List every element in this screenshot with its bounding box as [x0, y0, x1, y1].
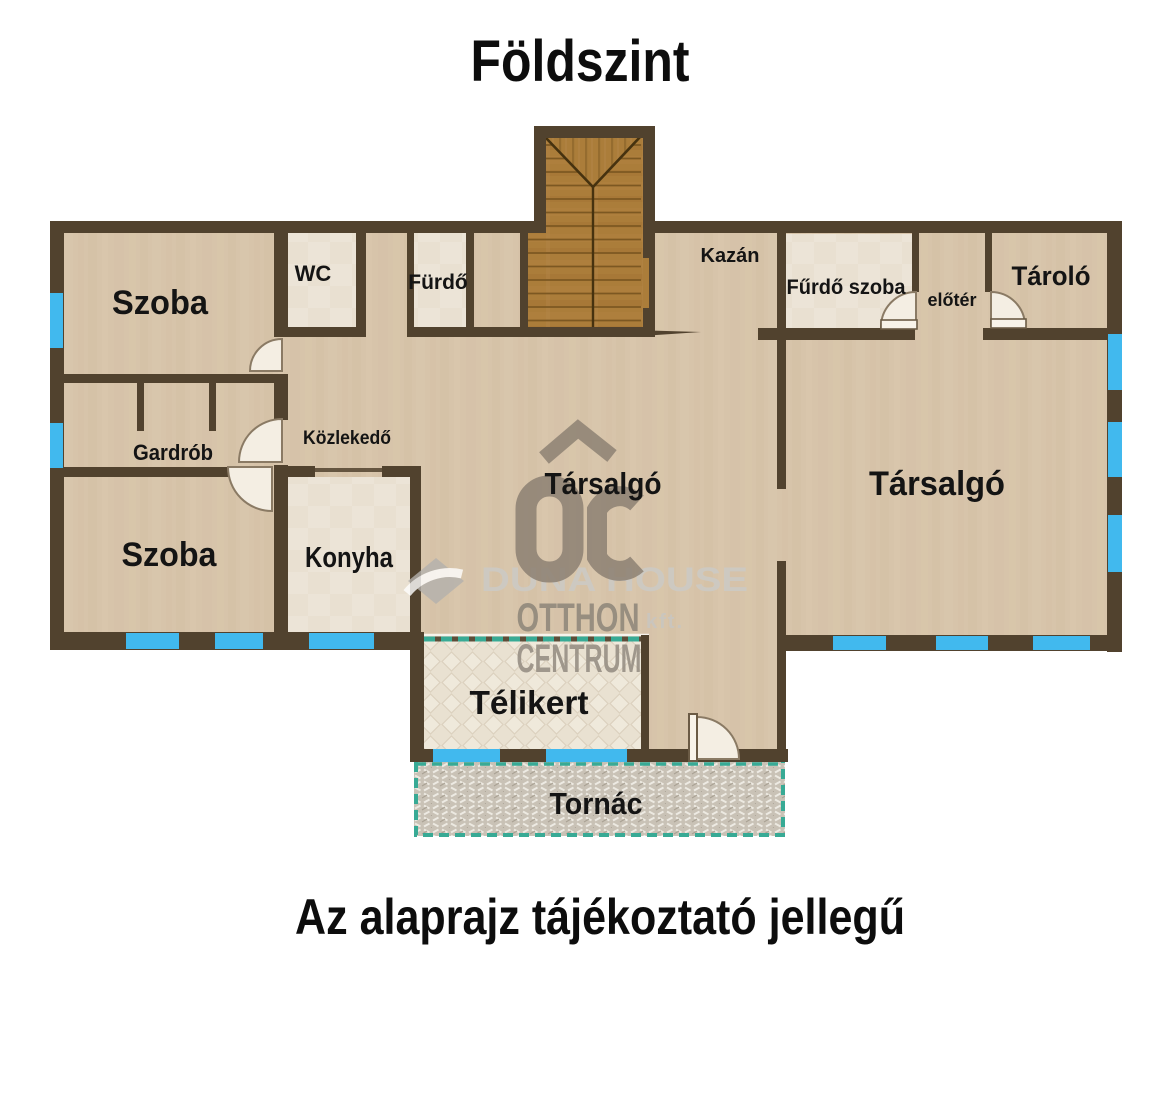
svg-text:WC: WC [295, 261, 332, 286]
svg-text:Közlekedő: Közlekedő [303, 428, 391, 449]
svg-text:CENTRUM: CENTRUM [517, 637, 642, 681]
svg-text:Kazán: Kazán [701, 245, 760, 267]
svg-text:Fürdő: Fürdő [408, 271, 467, 294]
svg-text:Földszint: Földszint [471, 29, 690, 94]
svg-text:Szoba: Szoba [122, 536, 218, 574]
svg-text:Tornác: Tornác [550, 786, 643, 821]
svg-text:Konyha: Konyha [305, 542, 394, 574]
svg-text:Télikert: Télikert [470, 684, 589, 721]
svg-text:Szoba: Szoba [112, 284, 209, 322]
svg-text:Tároló: Tároló [1012, 261, 1091, 291]
svg-text:Gardrób: Gardrób [133, 440, 213, 465]
svg-text:OTTHON: OTTHON [517, 596, 640, 640]
svg-text:Az alaprajz tájékoztató jelleg: Az alaprajz tájékoztató jellegű [295, 889, 905, 945]
svg-text:Fűrdő szoba: Fűrdő szoba [787, 276, 906, 299]
svg-text:Társalgó: Társalgó [545, 466, 662, 501]
svg-text:előtér: előtér [927, 290, 976, 310]
svg-text:kft.: kft. [646, 611, 684, 633]
svg-text:Társalgó: Társalgó [869, 465, 1005, 503]
